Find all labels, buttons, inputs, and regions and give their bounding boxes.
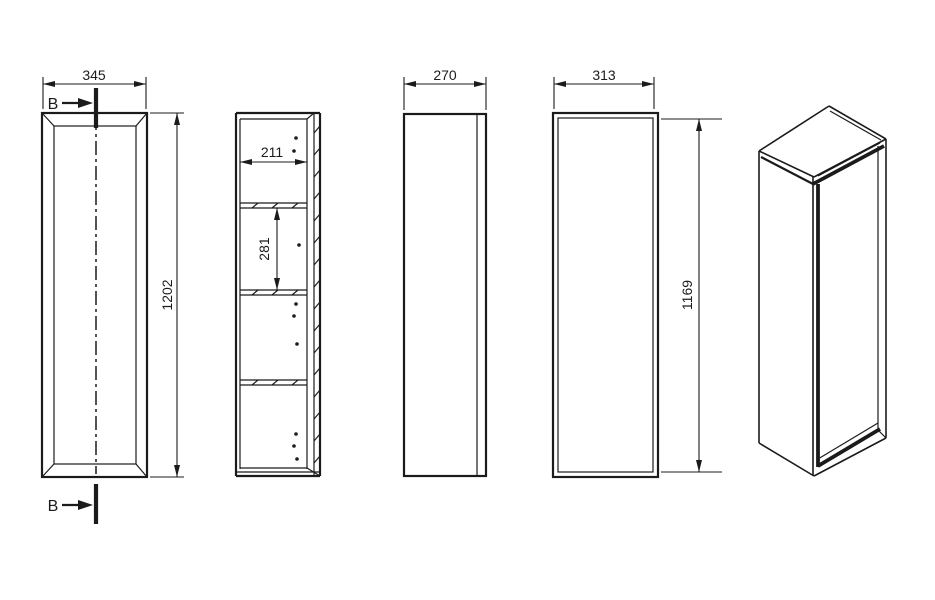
dim-label-front-height: 1202 [159, 279, 175, 310]
arrowhead-icon [134, 81, 146, 87]
isometric-side-face [759, 151, 814, 476]
dimension-side-depth: 270 [404, 67, 486, 110]
arrowhead-icon [642, 81, 654, 87]
section-view: 211 281 [236, 113, 320, 476]
arrowhead-icon [404, 81, 416, 87]
dimension-back-width: 313 [554, 67, 654, 109]
shelf [240, 290, 307, 295]
arrowhead-icon [295, 159, 307, 165]
isometric-top-face [759, 106, 886, 184]
back-view: 313 1169 [553, 67, 722, 477]
shelf [240, 380, 307, 385]
isometric-view [759, 106, 886, 476]
shelf [240, 203, 307, 208]
arrowhead-icon [43, 81, 55, 87]
dim-label-section-width: 211 [261, 144, 284, 160]
dimension-back-height: 1169 [661, 119, 722, 472]
arrowhead-icon [78, 500, 93, 510]
dimension-section-width: 211 [240, 144, 307, 165]
arrowhead-icon [174, 113, 180, 125]
arrowhead-icon [174, 465, 180, 477]
front-view: 345 B B [42, 67, 184, 524]
section-marker-bottom: B [48, 484, 96, 524]
dim-label-front-width: 345 [82, 67, 106, 83]
isometric-front-opening [814, 139, 886, 476]
section-label-top: B [48, 96, 59, 113]
dim-label-side-depth: 270 [433, 67, 457, 83]
front-door-panel [42, 113, 147, 477]
arrowhead-icon [78, 98, 93, 108]
section-label-bottom: B [48, 498, 59, 515]
arrowhead-icon [274, 278, 280, 290]
arrowhead-icon [696, 119, 702, 131]
section-marker-top: B [48, 88, 96, 128]
arrowhead-icon [474, 81, 486, 87]
dim-label-back-height: 1169 [679, 280, 695, 310]
dimension-compartment-height: 281 [256, 208, 280, 290]
arrowhead-icon [696, 460, 702, 472]
arrowhead-icon [240, 159, 252, 165]
shelf-pin-holes [292, 136, 301, 461]
dimension-front-height: 1202 [150, 113, 184, 477]
arrowhead-icon [554, 81, 566, 87]
cabinet-drawing: 345 B B [0, 0, 935, 600]
technical-drawing-canvas: 345 B B [0, 0, 935, 600]
side-view: 270 [404, 67, 486, 476]
back-panel [553, 113, 658, 477]
dim-label-compartment-height: 281 [256, 237, 272, 261]
arrowhead-icon [274, 208, 280, 220]
dim-label-back-width: 313 [592, 67, 616, 83]
side-panel [404, 114, 486, 476]
